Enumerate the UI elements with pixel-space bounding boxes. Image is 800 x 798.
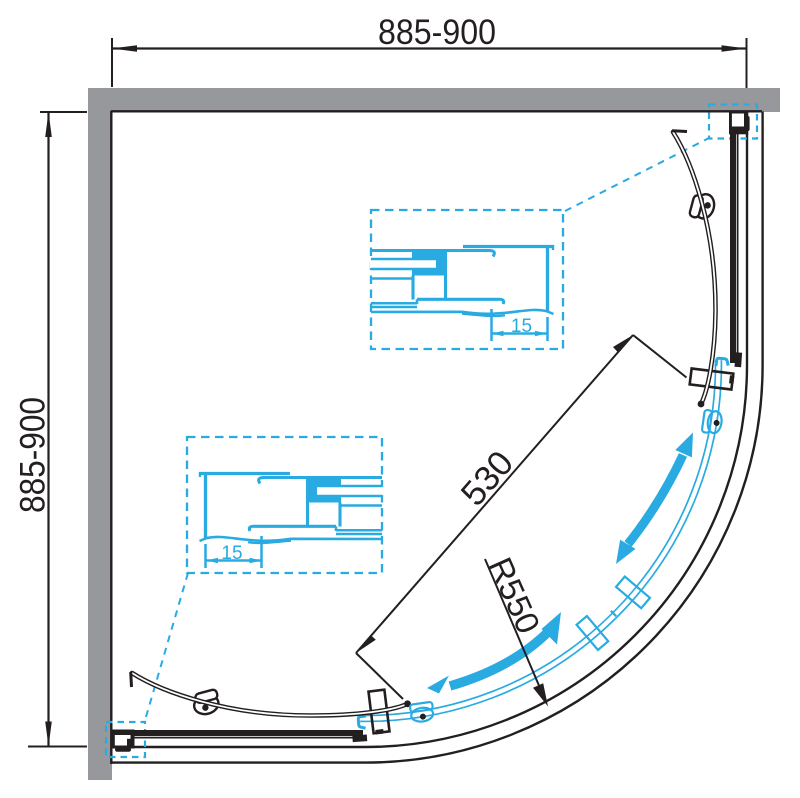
svg-text:15: 15 bbox=[511, 316, 532, 337]
svg-text:R550: R550 bbox=[482, 552, 548, 639]
svg-text:15: 15 bbox=[221, 543, 242, 564]
svg-text:530: 530 bbox=[453, 444, 521, 514]
svg-text:885-900: 885-900 bbox=[378, 13, 496, 52]
svg-text:885-900: 885-900 bbox=[14, 397, 53, 513]
